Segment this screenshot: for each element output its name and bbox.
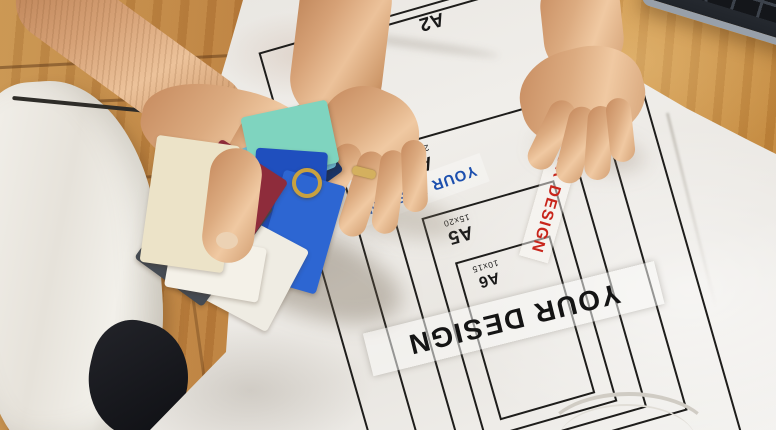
photo-scene: A2 A3 32x45 A4 21x30 A5 15x20 bbox=[0, 0, 776, 430]
second-hand-finger bbox=[401, 140, 428, 213]
size-label-a6: A6 10x15 bbox=[471, 258, 504, 290]
binder-ring bbox=[292, 168, 322, 198]
